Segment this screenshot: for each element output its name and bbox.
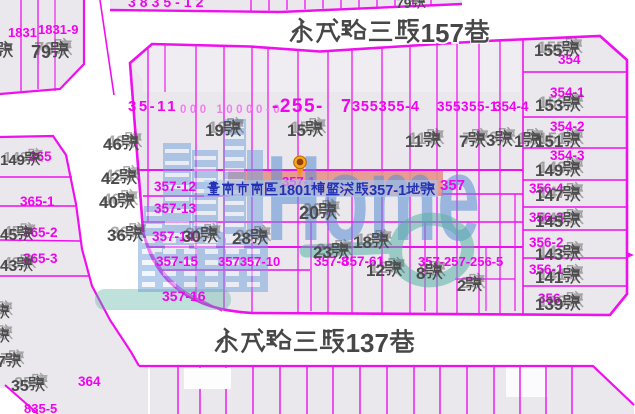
svg-text:18: 18 — [353, 233, 372, 252]
svg-text:35-11: 35-11 — [128, 98, 178, 115]
svg-text:45: 45 — [0, 227, 18, 244]
svg-text:1: 1 — [514, 132, 523, 151]
svg-text:12: 12 — [366, 261, 385, 280]
svg-text:3835-12: 3835-12 — [128, 0, 207, 10]
svg-text:7: 7 — [341, 96, 351, 116]
svg-text:23: 23 — [313, 243, 332, 262]
svg-text:2: 2 — [457, 278, 466, 295]
svg-text:20: 20 — [299, 203, 319, 223]
svg-text:151: 151 — [535, 132, 563, 151]
svg-text:8: 8 — [416, 264, 425, 283]
svg-text:36: 36 — [107, 226, 126, 245]
svg-text:145: 145 — [535, 212, 563, 231]
svg-text:137: 137 — [346, 328, 389, 358]
svg-text:357-15: 357-15 — [156, 254, 199, 269]
svg-text:7: 7 — [459, 132, 468, 151]
svg-text:157: 157 — [421, 18, 464, 48]
svg-text:46: 46 — [103, 135, 122, 154]
svg-text:1801: 1801 — [279, 183, 311, 199]
svg-text:153: 153 — [535, 96, 563, 115]
svg-text:357-16: 357-16 — [162, 288, 206, 304]
svg-text:139: 139 — [535, 295, 563, 314]
svg-text:143: 143 — [535, 245, 563, 264]
svg-text:357357-10: 357357-10 — [218, 254, 280, 269]
svg-text:365-1: 365-1 — [20, 194, 55, 209]
svg-text:149: 149 — [0, 152, 25, 169]
svg-text:835-5: 835-5 — [24, 401, 57, 414]
svg-text:11: 11 — [405, 132, 423, 151]
svg-text:000 10000-0: 000 10000-0 — [180, 104, 283, 116]
svg-text:-255-: -255- — [272, 96, 324, 117]
svg-text:79: 79 — [396, 0, 412, 11]
svg-text:1831: 1831 — [8, 25, 37, 40]
svg-text:364: 364 — [78, 374, 101, 389]
svg-text:15: 15 — [287, 121, 306, 140]
svg-text:141: 141 — [535, 268, 563, 287]
svg-text:28: 28 — [232, 229, 251, 248]
svg-text:3: 3 — [486, 131, 495, 150]
svg-text:1831-9: 1831-9 — [38, 22, 78, 37]
svg-text:147: 147 — [535, 186, 563, 205]
svg-text:35: 35 — [11, 378, 29, 395]
svg-text:357-1: 357-1 — [369, 183, 406, 199]
svg-text:149: 149 — [535, 161, 563, 180]
svg-text:357-12: 357-12 — [154, 179, 196, 194]
svg-text:355355-4: 355355-4 — [352, 99, 420, 115]
svg-text:357-13: 357-13 — [154, 201, 197, 216]
svg-text:42: 42 — [101, 169, 120, 188]
svg-text:79: 79 — [31, 42, 51, 62]
svg-text:43: 43 — [0, 258, 18, 275]
svg-text:40: 40 — [99, 193, 118, 212]
svg-text:155: 155 — [534, 41, 562, 60]
svg-text:19: 19 — [205, 121, 224, 140]
svg-text:354-4: 354-4 — [494, 99, 529, 114]
svg-text:355355-1: 355355-1 — [437, 99, 498, 114]
svg-text:7: 7 — [0, 354, 6, 371]
svg-text:30: 30 — [182, 227, 201, 246]
svg-text:357: 357 — [440, 177, 465, 194]
